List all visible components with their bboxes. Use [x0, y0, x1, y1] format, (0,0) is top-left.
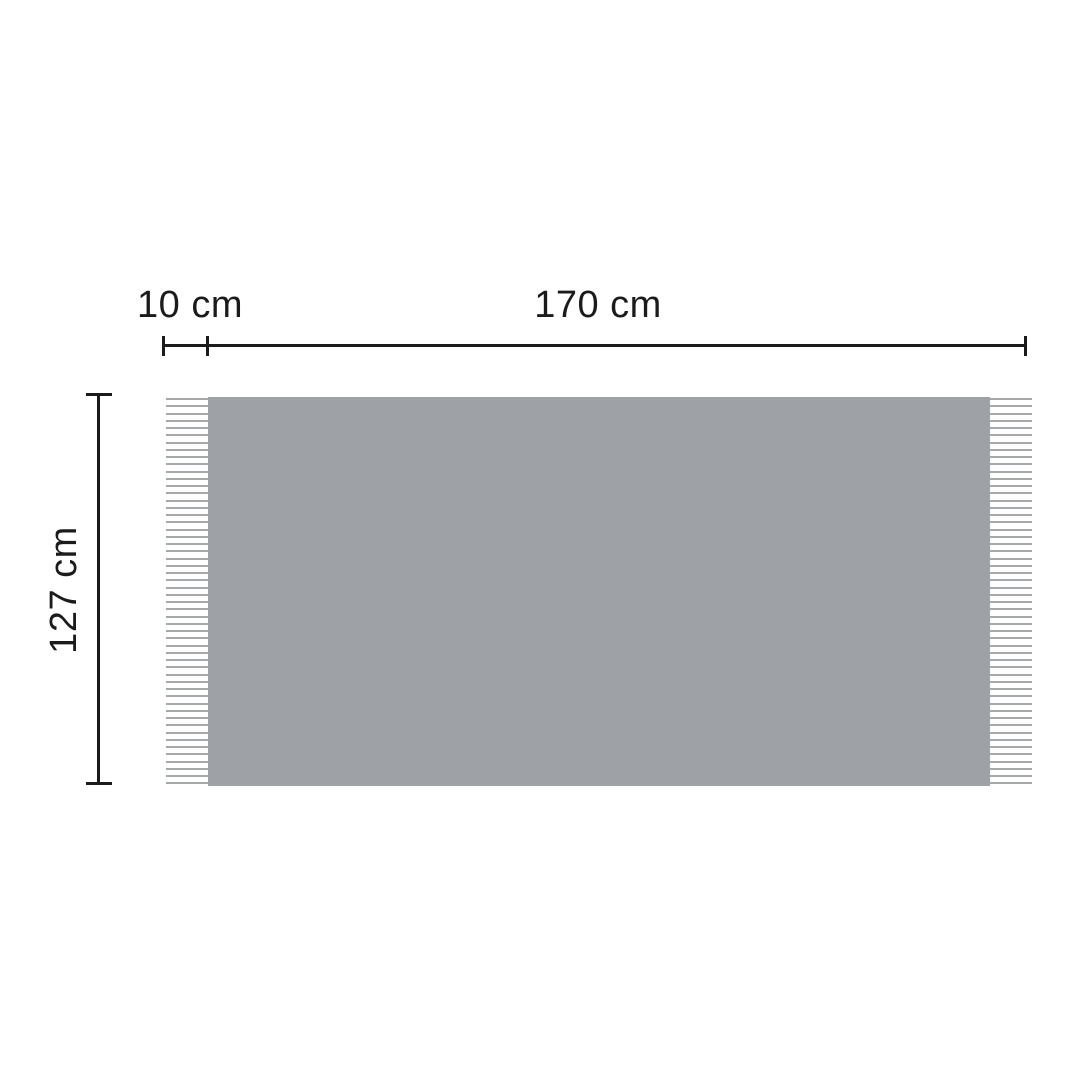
fringe-line	[166, 536, 208, 538]
fringe-line	[166, 413, 208, 415]
fringe-line	[990, 768, 1032, 770]
fringe-line	[166, 782, 208, 784]
fringe-line	[166, 427, 208, 429]
fringe-line	[990, 558, 1032, 560]
fringe-line	[990, 710, 1032, 712]
width-dimension-tick-middle	[206, 336, 209, 356]
fringe-line	[990, 405, 1032, 407]
fringe-line	[166, 507, 208, 509]
fringe-line	[166, 420, 208, 422]
fringe-line	[990, 521, 1032, 523]
fringe-line	[990, 434, 1032, 436]
fringe-line	[166, 572, 208, 574]
fringe-line	[990, 630, 1032, 632]
fringe-line	[990, 587, 1032, 589]
fringe-line	[166, 637, 208, 639]
fringe-line	[990, 753, 1032, 755]
fringe-line	[990, 775, 1032, 777]
fringe-line	[166, 746, 208, 748]
fringe-line	[166, 543, 208, 545]
fringe-line	[990, 623, 1032, 625]
fringe-line	[990, 688, 1032, 690]
fringe-line	[990, 724, 1032, 726]
fringe-line	[990, 398, 1032, 400]
fringe-line	[990, 659, 1032, 661]
fringe-line	[166, 587, 208, 589]
fringe-line	[990, 420, 1032, 422]
fringe-line	[166, 688, 208, 690]
fringe-line	[166, 521, 208, 523]
fringe-line	[166, 652, 208, 654]
fringe-line	[166, 623, 208, 625]
fringe-line	[166, 442, 208, 444]
fringe-line	[166, 666, 208, 668]
fringe-line	[166, 456, 208, 458]
fringe-line	[990, 478, 1032, 480]
height-dimension-tick-bottom	[86, 782, 112, 785]
fringe-line	[990, 492, 1032, 494]
fringe-line	[166, 529, 208, 531]
fringe-line	[990, 471, 1032, 473]
fringe-line	[166, 768, 208, 770]
fringe-line	[166, 724, 208, 726]
blanket-fringe-left	[166, 398, 208, 785]
fringe-line	[166, 449, 208, 451]
fringe-line	[990, 550, 1032, 552]
fringe-line	[990, 616, 1032, 618]
fringe-line	[166, 565, 208, 567]
fringe-line	[990, 761, 1032, 763]
fringe-line	[990, 442, 1032, 444]
fringe-line	[166, 558, 208, 560]
fringe-line	[166, 601, 208, 603]
fringe-line	[166, 514, 208, 516]
height-dimension-line	[97, 395, 100, 785]
fringe-line	[166, 695, 208, 697]
fringe-line	[990, 507, 1032, 509]
fringe-line	[990, 782, 1032, 784]
fringe-line	[990, 608, 1032, 610]
fringe-line	[990, 681, 1032, 683]
fringe-line	[990, 514, 1032, 516]
fringe-line	[990, 717, 1032, 719]
fringe-line	[990, 739, 1032, 741]
fringe-line	[166, 710, 208, 712]
fringe-line	[166, 405, 208, 407]
fringe-line	[990, 703, 1032, 705]
dimension-diagram: 10 cm 170 cm 127 cm	[0, 0, 1080, 1080]
fringe-line	[990, 485, 1032, 487]
fringe-line	[990, 674, 1032, 676]
fringe-line	[166, 478, 208, 480]
fringe-line	[990, 637, 1032, 639]
fringe-line	[990, 572, 1032, 574]
width-dimension-line	[163, 344, 1026, 347]
fringe-line	[166, 775, 208, 777]
fringe-line	[166, 398, 208, 400]
fringe-line	[166, 659, 208, 661]
blanket-body	[208, 397, 990, 786]
fringe-line	[990, 529, 1032, 531]
fringe-line	[166, 717, 208, 719]
fringe-line	[166, 761, 208, 763]
fringe-line	[166, 616, 208, 618]
fringe-line	[166, 645, 208, 647]
fringe-line	[990, 732, 1032, 734]
fringe-line	[166, 739, 208, 741]
fringe-line	[990, 427, 1032, 429]
fringe-line	[166, 434, 208, 436]
fringe-line	[166, 732, 208, 734]
fringe-line	[166, 463, 208, 465]
fringe-line	[166, 674, 208, 676]
fringe-line	[990, 463, 1032, 465]
width-dimension-tick-left	[162, 336, 165, 356]
fringe-line	[166, 492, 208, 494]
fringe-line	[166, 579, 208, 581]
fringe-line	[990, 579, 1032, 581]
blanket-width-label: 170 cm	[518, 285, 678, 325]
fringe-line	[166, 681, 208, 683]
fringe-line	[990, 601, 1032, 603]
fringe-line	[166, 630, 208, 632]
blanket-fringe-right	[990, 398, 1032, 785]
fringe-line	[990, 500, 1032, 502]
fringe-line	[990, 594, 1032, 596]
fringe-line	[166, 550, 208, 552]
fringe-line	[990, 652, 1032, 654]
fringe-line	[990, 645, 1032, 647]
fringe-line	[990, 746, 1032, 748]
fringe-line	[166, 594, 208, 596]
fringe-line	[990, 695, 1032, 697]
fringe-line	[990, 666, 1032, 668]
fringe-line	[990, 565, 1032, 567]
height-dimension-tick-top	[86, 393, 112, 396]
fringe-line	[990, 536, 1032, 538]
fringe-line	[166, 500, 208, 502]
fringe-line	[166, 753, 208, 755]
fringe-line	[166, 471, 208, 473]
fringe-line	[166, 703, 208, 705]
fringe-line	[990, 413, 1032, 415]
fringe-line	[990, 456, 1032, 458]
fringe-width-label: 10 cm	[125, 285, 255, 325]
fringe-line	[990, 543, 1032, 545]
fringe-line	[166, 608, 208, 610]
fringe-line	[990, 449, 1032, 451]
blanket-height-label: 127 cm	[44, 490, 84, 690]
width-dimension-tick-right	[1024, 336, 1027, 356]
fringe-line	[166, 485, 208, 487]
